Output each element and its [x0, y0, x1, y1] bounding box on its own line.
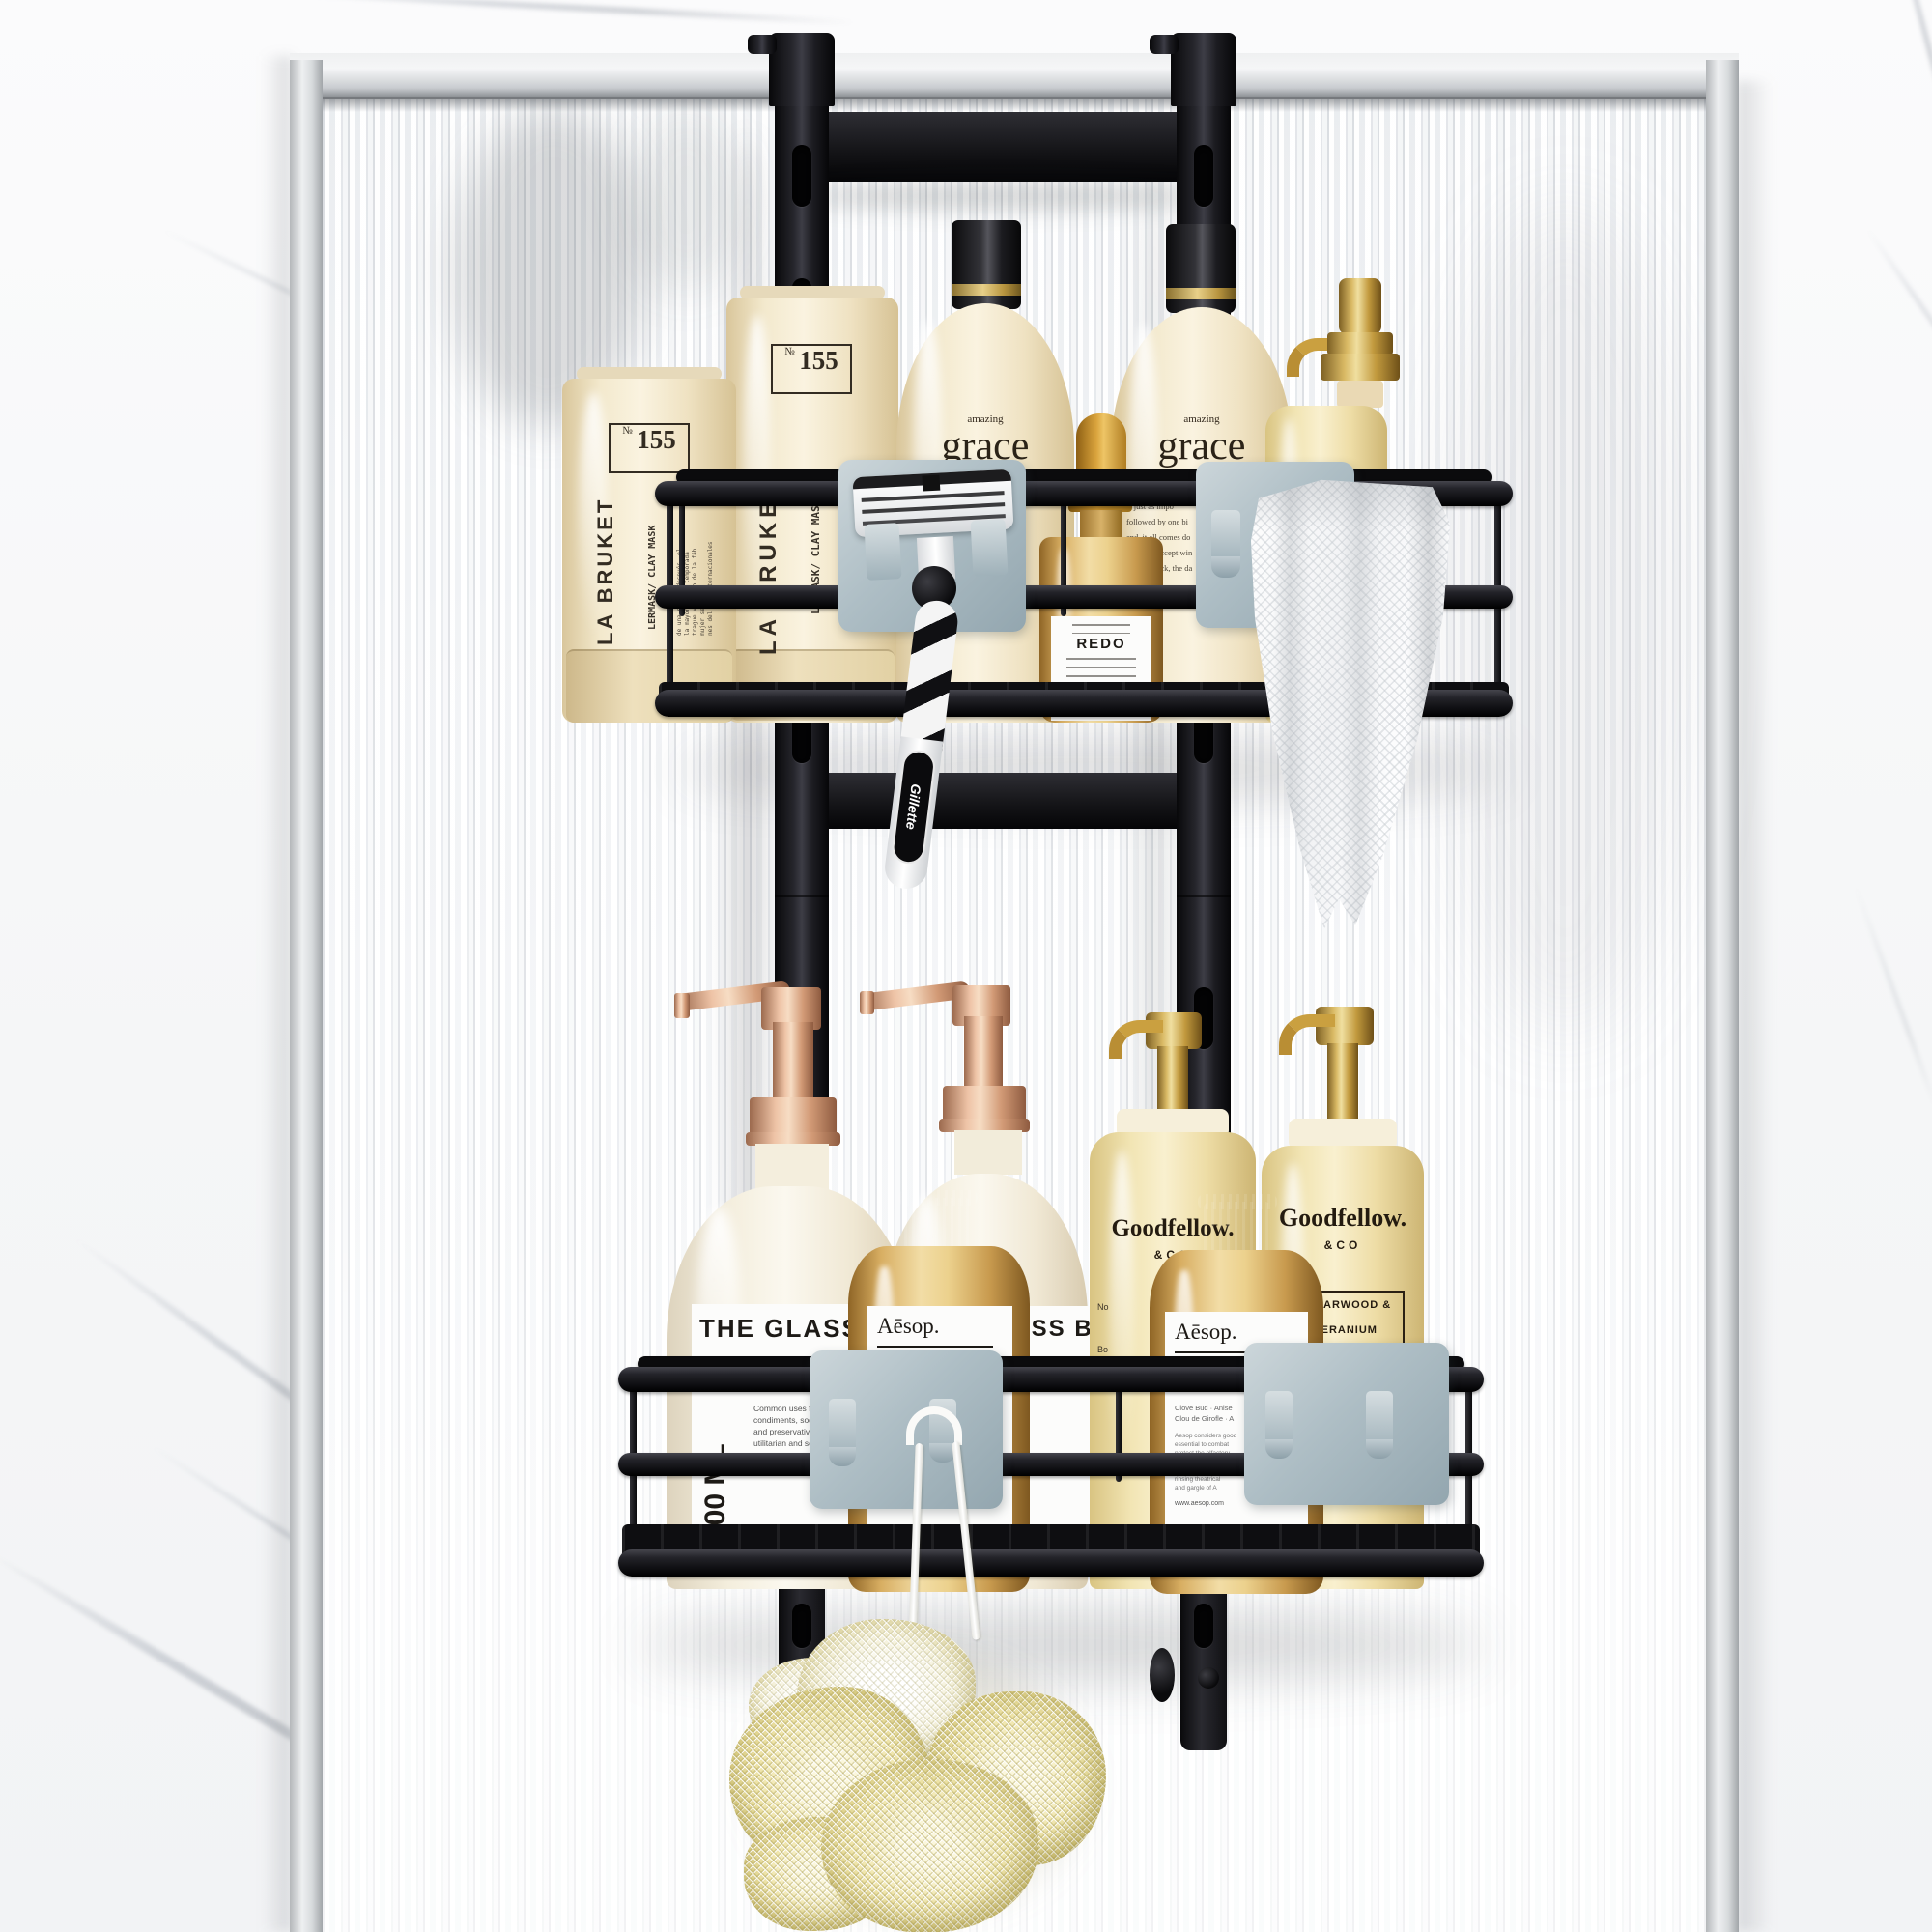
loofah [729, 1619, 1116, 1932]
rail-slot [792, 145, 811, 207]
glass-top-seal [323, 99, 1706, 112]
pump-stem [964, 1016, 1003, 1088]
pump-stem [773, 1022, 813, 1099]
door-frame-left [290, 60, 323, 1932]
hook-tip [1211, 556, 1240, 578]
door-shadow-left [263, 56, 292, 1932]
bottle-cap [952, 220, 1021, 309]
tube-brand: LA BRUKET [755, 423, 782, 655]
loofah-lobe [821, 1759, 1038, 1932]
pump-stem [1327, 1043, 1358, 1119]
over-door-hook-lip [748, 35, 777, 54]
hook-tip [1265, 1439, 1293, 1459]
hook-tip [829, 1447, 856, 1466]
pump-knob [1339, 278, 1381, 334]
rail-seam [775, 895, 829, 897]
aesop-brand: Aēsop. [1175, 1320, 1308, 1345]
tube-number: 155 [637, 425, 676, 454]
tube-brand: LA BRUKET [593, 491, 618, 645]
rail-seam [1177, 895, 1231, 897]
rail-slot [1194, 145, 1213, 207]
caddy-crossbar-top [802, 112, 1204, 182]
over-door-hook-lip [1150, 35, 1179, 54]
tube-number-symbol: № [784, 346, 795, 357]
pump-stem [1157, 1046, 1188, 1114]
crossbar-shadow [802, 184, 1204, 209]
door-frame-top [290, 53, 1739, 99]
razor-head-tab [922, 475, 940, 492]
tube-number-box: № 155 [609, 423, 690, 473]
bracket-bolt [1198, 1667, 1219, 1689]
door-frame-right [1706, 60, 1739, 1932]
dropper-minilines [1066, 658, 1136, 683]
glass-reflection-smudge [628, 108, 744, 292]
bathroom-product-scene: № 155 LA BRUKET LERMASK/ CLAY MASK de un… [0, 0, 1932, 1932]
pump-neck-ring [1337, 381, 1383, 408]
bracket-slot [1194, 1604, 1213, 1648]
razor-brand: Gillette [903, 783, 924, 831]
razor-holder-arm [865, 523, 902, 581]
dropper-minilines [1072, 624, 1130, 634]
goodfellow-fragments: No Bo [1097, 1296, 1136, 1360]
bottle-neck [755, 1144, 829, 1190]
caddy-crossbar-middle [802, 773, 1204, 829]
over-door-hook-left [769, 33, 835, 106]
aesop-brand: Aēsop. [877, 1314, 1012, 1339]
razor-holder-arm [971, 519, 1009, 577]
bottom-basket-front-rim [618, 1549, 1484, 1577]
tube-number-symbol: № [622, 425, 633, 437]
bracket-bumper-knob [1150, 1648, 1175, 1702]
dropper-heading: REDO [1051, 636, 1151, 652]
tube-number: 155 [799, 346, 838, 375]
aesop-rule [877, 1346, 993, 1348]
tube-number-box: № 155 [771, 344, 852, 394]
bottle-neck [954, 1130, 1022, 1175]
glass-reflection-smudge [1439, 203, 1690, 1034]
tube-type: LERMASK/ CLAY MASK [810, 412, 822, 614]
amber-dropper-bottle: REDO PARFUM D'INTERIEUR [1039, 413, 1163, 723]
pump-tier [1321, 354, 1400, 381]
razor-blade-line [862, 491, 1005, 502]
hook-tip [1366, 1439, 1393, 1459]
pump-spout [1109, 1020, 1163, 1059]
razor-blade-line [862, 502, 1005, 514]
tube-type: LERMASK/ CLAY MASK [647, 485, 658, 630]
pump-nozzle [674, 993, 690, 1018]
bottle-cap [1166, 224, 1236, 313]
door-shadow-right [1737, 81, 1772, 1932]
clay-mask-tube-front: № 155 LA BRUKET LERMASK/ CLAY MASK de un… [562, 367, 736, 723]
pump-tier [1327, 332, 1393, 355]
over-door-hook-right [1171, 33, 1236, 106]
